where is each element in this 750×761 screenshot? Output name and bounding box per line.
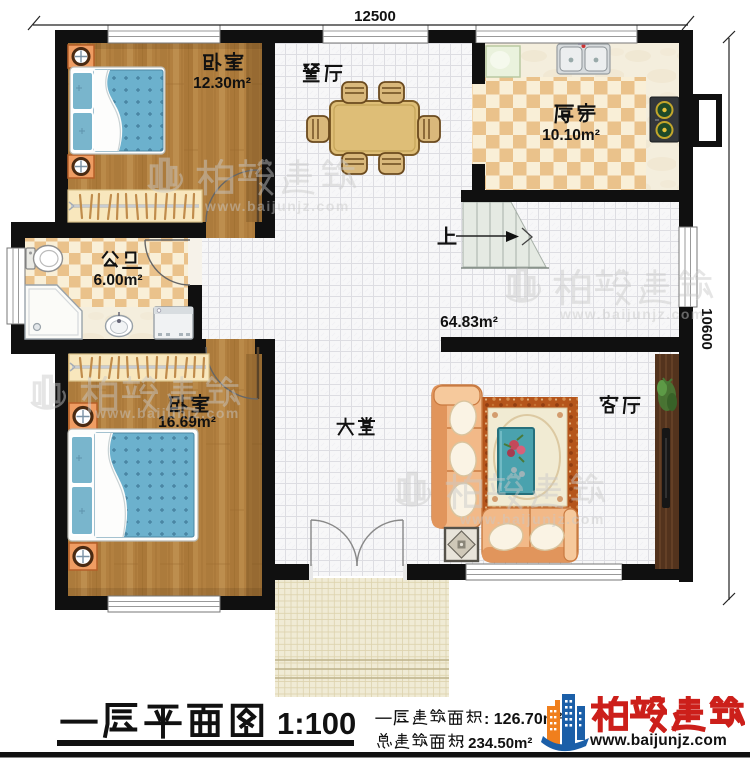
svg-text:www.baijunjz.com: www.baijunjz.com [589,732,727,749]
svg-text:www.baijunjz.com: www.baijunjz.com [459,511,605,527]
svg-text:12.30m²: 12.30m² [193,75,251,92]
svg-text:www.baijunjz.com: www.baijunjz.com [559,306,705,322]
svg-text:64.83m²: 64.83m² [440,314,498,331]
svg-text:www.baijunjz.com: www.baijunjz.com [94,405,240,421]
svg-text:12500: 12500 [354,8,396,25]
svg-text:: 234.50m²: : 234.50m² [459,735,532,752]
svg-text:1:100: 1:100 [277,706,356,741]
svg-text:10.10m²: 10.10m² [542,127,600,144]
svg-text:6.00m²: 6.00m² [93,272,142,289]
svg-text:www.baijunjz.com: www.baijunjz.com [204,198,350,214]
